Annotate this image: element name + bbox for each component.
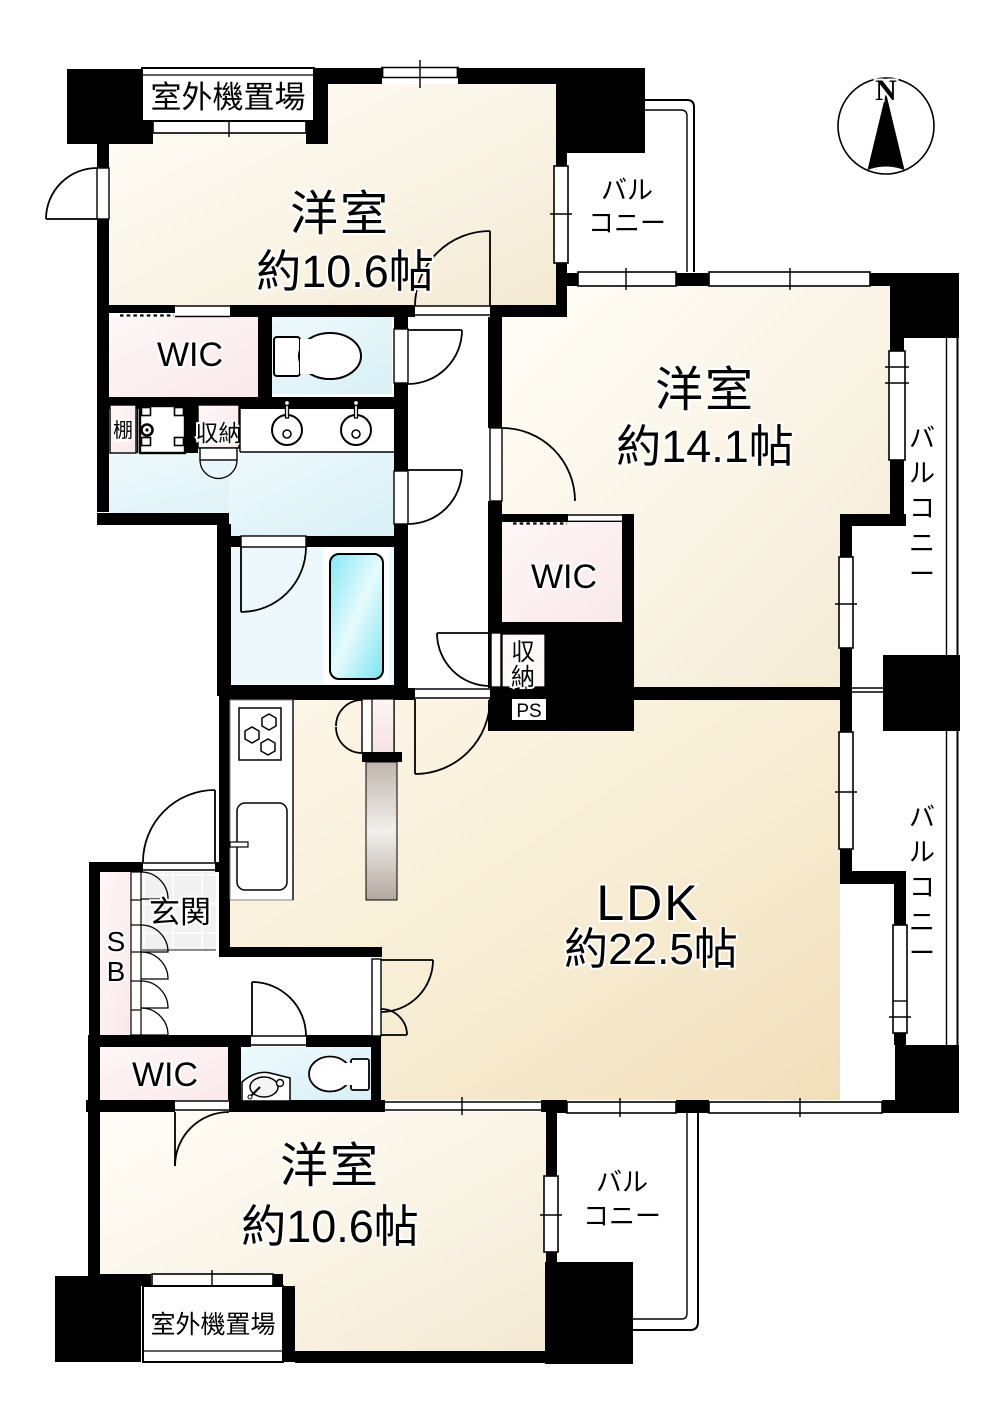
- svg-text:ー: ー: [909, 938, 935, 968]
- svg-text:棚: 棚: [113, 419, 133, 442]
- svg-text:WIC: WIC: [157, 336, 223, 374]
- svg-text:洋室: 洋室: [280, 1140, 380, 1193]
- svg-text:バル: バル: [601, 175, 653, 205]
- svg-text:LDK: LDK: [596, 875, 699, 931]
- svg-text:ー: ー: [909, 559, 935, 589]
- svg-text:収納: 収納: [196, 420, 242, 446]
- svg-text:ニ: ニ: [909, 528, 935, 558]
- svg-text:約10.6帖: 約10.6帖: [241, 1201, 419, 1252]
- svg-text:室外機置場: 室外機置場: [151, 80, 306, 115]
- svg-text:納: 納: [511, 664, 535, 691]
- svg-text:WIC: WIC: [132, 1056, 198, 1094]
- svg-text:PS: PS: [516, 701, 541, 722]
- svg-text:約10.6帖: 約10.6帖: [256, 246, 434, 297]
- svg-text:収: 収: [511, 639, 535, 666]
- svg-text:室外機置場: 室外機置場: [150, 1311, 275, 1339]
- svg-text:S: S: [107, 926, 126, 957]
- svg-text:WIC: WIC: [531, 558, 597, 596]
- svg-text:約22.5帖: 約22.5帖: [564, 925, 738, 974]
- svg-text:バ: バ: [909, 802, 935, 832]
- svg-text:N: N: [875, 74, 897, 107]
- svg-text:コニー: コニー: [588, 208, 666, 238]
- svg-text:洋室: 洋室: [655, 364, 755, 417]
- svg-text:バル: バル: [596, 1167, 648, 1197]
- svg-text:コ: コ: [909, 493, 935, 523]
- svg-text:B: B: [107, 956, 126, 987]
- svg-text:コニー: コニー: [583, 1201, 661, 1231]
- svg-text:ル: ル: [909, 458, 935, 488]
- svg-text:バ: バ: [909, 423, 935, 453]
- svg-text:コ: コ: [909, 872, 935, 902]
- svg-text:ニ: ニ: [909, 907, 935, 937]
- svg-text:約14.1帖: 約14.1帖: [616, 421, 794, 472]
- svg-text:洋室: 洋室: [290, 188, 390, 241]
- svg-text:ル: ル: [909, 837, 935, 867]
- svg-text:玄関: 玄関: [149, 895, 211, 930]
